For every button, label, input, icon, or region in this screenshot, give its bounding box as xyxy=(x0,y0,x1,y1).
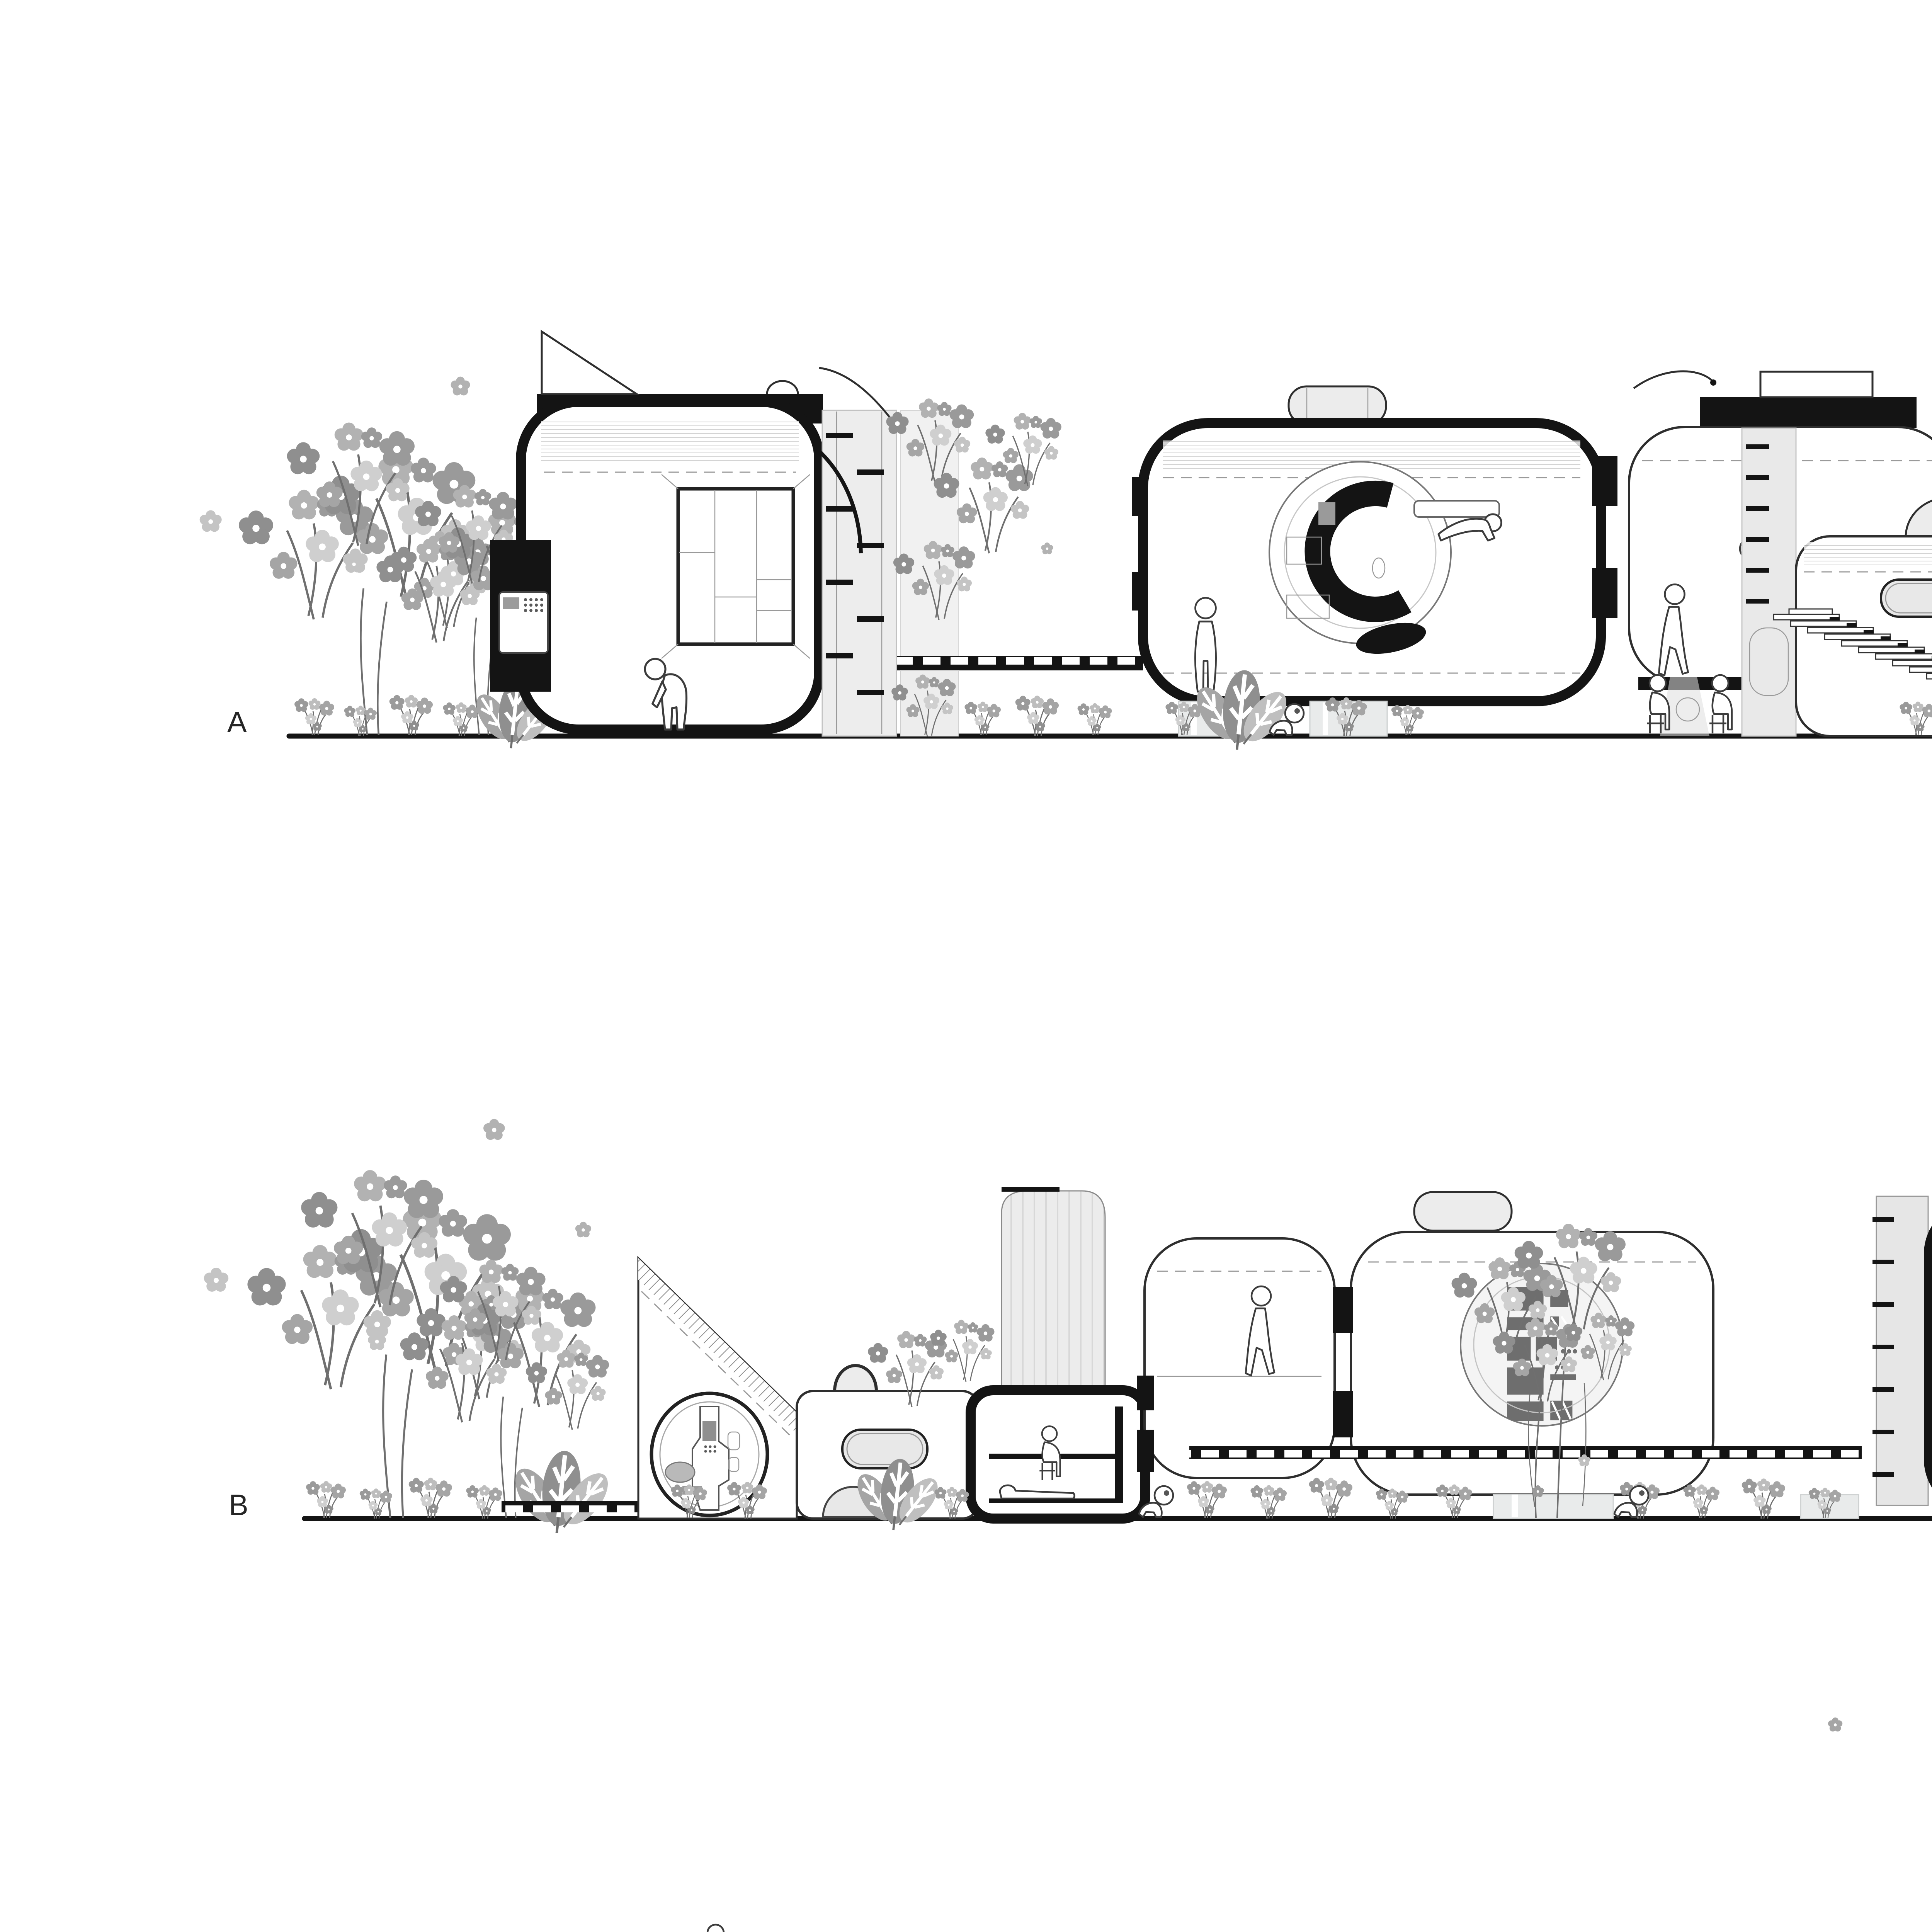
wardrobe-window xyxy=(662,474,810,658)
pod-bunks-cut xyxy=(971,1390,1145,1519)
pod-living-cut xyxy=(1872,1175,1932,1508)
pod-shell-left xyxy=(1145,1238,1335,1478)
section-dd-drawing xyxy=(1475,1925,1932,1932)
wall-appliance xyxy=(490,540,551,692)
terrace-diners xyxy=(1647,675,1732,736)
trees-left xyxy=(204,1119,616,1536)
triangle-wall xyxy=(638,1258,797,1519)
sections-artwork xyxy=(0,0,1932,1932)
pod-capsule-cut xyxy=(1132,386,1617,701)
roof-level xyxy=(657,1925,819,1932)
drawing-sheet: A A B B C C D D xyxy=(0,0,1932,1932)
section-aa-drawing xyxy=(200,332,1932,753)
section-cc-drawing xyxy=(364,1925,1286,1932)
dormer xyxy=(835,1366,876,1391)
oval-window xyxy=(1881,580,1932,617)
pod-bedroom-cut xyxy=(490,332,823,730)
porthole-console xyxy=(651,1393,767,1515)
roof-beam xyxy=(1700,397,1917,428)
pod-shell xyxy=(1929,1206,1932,1508)
green-wall xyxy=(886,398,1061,658)
roof-antenna xyxy=(542,332,637,394)
stair-column xyxy=(1742,428,1796,736)
section-bb-label-left: B xyxy=(229,1491,248,1520)
roof-cylinder xyxy=(1414,1192,1512,1231)
section-bb-drawing xyxy=(204,1119,1932,1731)
bridge-walkway xyxy=(1189,1446,1862,1459)
roof-box xyxy=(1760,372,1872,397)
bridge-walkway xyxy=(897,656,1143,670)
chimney-volume xyxy=(1002,1187,1105,1392)
section-aa-label-left: A xyxy=(227,708,247,737)
